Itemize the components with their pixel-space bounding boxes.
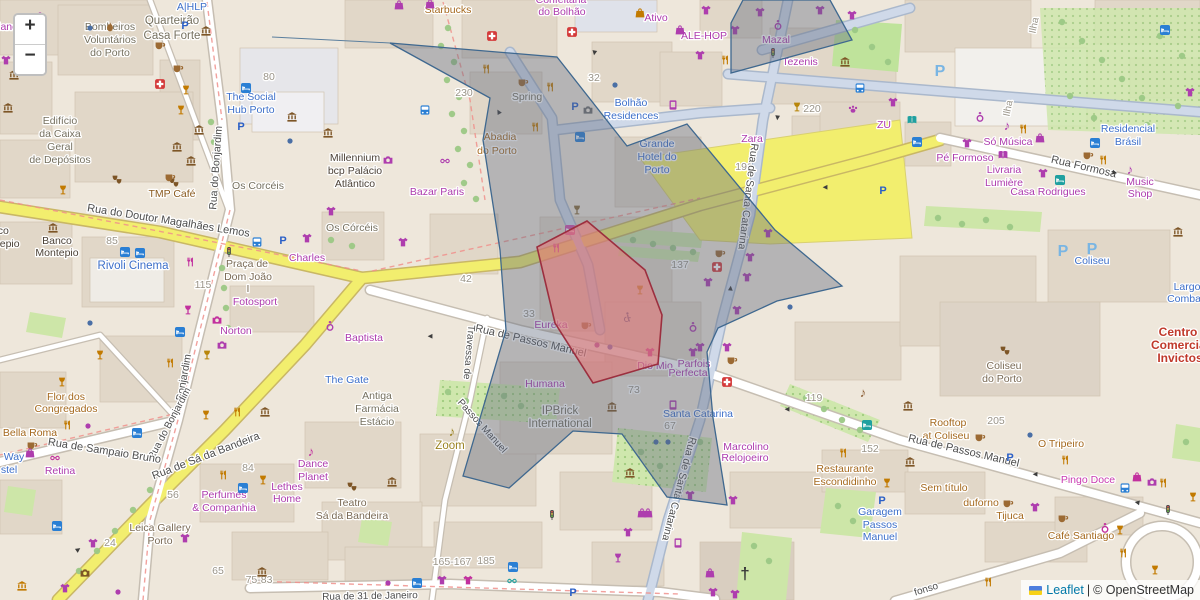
map-label: Bolhão: [615, 97, 648, 109]
dot-icon: [85, 423, 90, 428]
bus-icon: [1121, 483, 1130, 492]
map-label: 205: [987, 415, 1005, 427]
map-label: Pé Formoso: [936, 152, 993, 164]
parking-icon: P: [1058, 243, 1069, 260]
map-label: 115: [195, 279, 212, 291]
arw-icon: ►: [590, 48, 600, 57]
parking-icon: P: [279, 235, 286, 247]
map-label: Ativo: [644, 12, 668, 24]
attribution-bar: Leaflet|© OpenStreetMap: [1021, 580, 1200, 600]
map-label: Charles: [289, 252, 325, 264]
map-canvas[interactable]: BombeirosVoluntáriosdo PortoEdifícioda C…: [0, 0, 1200, 600]
bed-icon: [135, 248, 145, 258]
bed-icon: [175, 327, 185, 337]
map-label: ZU: [877, 119, 891, 131]
map-label: Lethes: [271, 481, 303, 493]
map-label: Millennium: [330, 152, 380, 164]
note-icon: ♪: [1127, 162, 1134, 177]
note-icon: ♪: [860, 385, 867, 400]
map-label: Porto: [147, 535, 172, 547]
map-label: Teatro: [337, 497, 366, 509]
map-label: Fotosport: [233, 296, 277, 308]
bed-icon: [1160, 25, 1170, 35]
dot-icon: [612, 82, 617, 87]
bus-icon: [856, 83, 865, 92]
map-label: da Caixa: [39, 128, 81, 140]
map-label: Pingo Doce: [1061, 474, 1115, 486]
map-label: Farmácia: [355, 403, 399, 415]
med-icon: [487, 31, 497, 41]
map-label: Os Corcéis: [232, 180, 284, 192]
osm-attribution-link[interactable]: © OpenStreetMap: [1093, 583, 1194, 597]
map-label: I: [247, 283, 250, 295]
map-label: Home: [273, 493, 301, 505]
bed-icon: [1090, 138, 1100, 148]
bus-icon: [421, 105, 430, 114]
bed-icon: [508, 562, 518, 572]
map-label: 80: [263, 71, 275, 83]
map-label: Casa Rodrigues: [1010, 186, 1085, 198]
note-icon: ♪: [308, 444, 315, 459]
map-label: Edifício: [43, 115, 78, 127]
parking-icon: P: [935, 63, 946, 80]
note-icon: ♪: [1004, 118, 1011, 133]
map-label: duforno: [963, 497, 999, 509]
map-label: Restaurante: [816, 463, 873, 475]
map-label: Sá da Bandeira: [316, 510, 389, 522]
bed-icon: [912, 137, 922, 147]
dot-icon: [385, 580, 390, 585]
bed-icon: [241, 83, 251, 93]
map-label: Estácio: [360, 416, 395, 428]
map-label: 56: [167, 489, 179, 501]
map-label: Escondidinho: [813, 476, 876, 488]
bed-icon: [238, 483, 248, 493]
map-label: Congregados: [34, 403, 97, 415]
map-label: Rooftop: [930, 417, 967, 429]
bed-icon: [120, 247, 130, 257]
dot-icon: [87, 320, 92, 325]
map-label: 65: [212, 565, 224, 577]
arw-icon: ►: [821, 183, 829, 192]
map-label: Flor dos: [47, 391, 85, 403]
map-label: Geral: [47, 141, 73, 153]
map-base: BombeirosVoluntáriosdo PortoEdifícioda C…: [0, 0, 1200, 600]
map-label: do Bolhão: [538, 6, 585, 18]
parking-icon: P: [1087, 241, 1098, 258]
map-label: Garagem: [858, 506, 902, 518]
zoom-in-button[interactable]: +: [15, 15, 45, 45]
parking-icon: P: [878, 495, 885, 507]
arw-icon: ►: [783, 405, 791, 414]
map-label: Shop: [1128, 188, 1153, 200]
parking-icon: P: [181, 20, 188, 32]
map-label: TMP Café: [148, 188, 195, 200]
map-label: Comercial: [1151, 338, 1200, 352]
map-label: A|HLP: [177, 1, 207, 13]
leaflet-link[interactable]: Leaflet: [1046, 583, 1084, 597]
zoom-out-button[interactable]: −: [15, 45, 45, 74]
map-label: Praça de: [226, 258, 268, 270]
dot-icon: [787, 304, 792, 309]
map-label: Passos: [863, 519, 897, 531]
arw-icon: ►: [1031, 470, 1039, 479]
map-label: 185: [477, 555, 495, 567]
med-icon: [567, 27, 577, 37]
map-label: Casa Forte: [144, 30, 201, 42]
parking-icon: P: [1006, 452, 1013, 464]
dot-icon: [1027, 432, 1032, 437]
note-icon: ♪: [449, 424, 456, 439]
map-label: Way: [4, 451, 25, 463]
map-label: 152: [861, 443, 879, 455]
map-label: Residencial: [1101, 123, 1155, 135]
map-label: Leica Gallery: [129, 522, 191, 534]
map-label: Zoom: [435, 440, 464, 452]
map-label: 165-167: [433, 556, 472, 568]
bed-icon: [412, 578, 422, 588]
map-label: Comba: [1167, 293, 1200, 305]
map-label: do Porto: [982, 373, 1022, 385]
map-label: Só Música: [983, 136, 1032, 148]
map-label: 220: [803, 103, 821, 115]
map-label: Relojoeiro: [721, 452, 768, 464]
map-label: Retina: [45, 465, 76, 477]
bed-icon: [1055, 175, 1065, 185]
bed-icon: [862, 420, 872, 430]
map-label: Atlântico: [335, 178, 375, 190]
map-label: Banco: [42, 235, 72, 247]
med-icon: [155, 79, 165, 89]
map-label: The Gate: [325, 374, 369, 386]
map-label: Brásil: [1115, 136, 1141, 148]
map-label: Voluntários: [84, 34, 136, 46]
map-label: 42: [460, 273, 472, 285]
map-label: Rivoli Cinema: [98, 260, 170, 272]
map-label: Bazar Paris: [410, 186, 464, 198]
parking-icon: P: [569, 587, 576, 599]
ukraine-flag-icon: [1029, 586, 1042, 595]
bus-icon: [253, 237, 262, 246]
bed-icon: [52, 521, 62, 531]
map-label: do Porto: [90, 47, 130, 59]
map-label: 85: [106, 235, 118, 247]
map-label: Montepio: [35, 247, 78, 259]
map-label: The Social: [226, 91, 276, 103]
map-label: Quarteirão: [145, 15, 199, 27]
parking-icon: P: [879, 185, 886, 197]
map-label: Dance: [298, 458, 329, 470]
map-label: ALE-HOP: [681, 30, 727, 42]
attribution-separator: |: [1087, 583, 1090, 597]
dot-icon: [115, 589, 120, 594]
map-label: Largo: [1174, 281, 1200, 293]
map-label: Norton: [220, 325, 252, 337]
parking-icon: P: [237, 121, 244, 133]
map-label: Bella Roma: [3, 427, 57, 439]
bed-icon: [132, 428, 142, 438]
map-label: Music: [1126, 176, 1153, 188]
map-label: Dom João: [224, 271, 272, 283]
map-label: 84: [242, 462, 254, 474]
map-label: Residences: [604, 110, 659, 122]
map-label: Coliseu: [986, 360, 1021, 372]
med-icon: [722, 377, 732, 387]
map-label: Centro: [1159, 325, 1198, 339]
map-label: de Depósitos: [29, 154, 90, 166]
map-label: Baptista: [345, 332, 383, 344]
map-label: Banco: [0, 225, 9, 237]
map-label: Montepio: [0, 238, 20, 250]
map-label: stel: [1, 464, 17, 476]
map-label: Rua de 31 de Janeiro: [322, 590, 418, 600]
map-label: & Companhia: [192, 502, 256, 514]
map-label: O Tripeiro: [1038, 438, 1084, 450]
dot-icon: [287, 138, 292, 143]
map-label: Hub Porto: [227, 104, 274, 116]
dot-icon: [87, 25, 92, 30]
map-label: 32: [588, 72, 600, 84]
map-label: 230: [455, 87, 473, 99]
map-label: bcp Palácio: [328, 165, 382, 177]
map-label: Tijuca: [996, 510, 1024, 522]
cross-icon: †: [740, 564, 749, 583]
arw-icon: ►: [773, 114, 783, 123]
arw-icon: ►: [1132, 498, 1141, 508]
map-label: Livraria: [987, 164, 1022, 176]
map-label: 119: [806, 392, 823, 404]
map-label: Manuel: [863, 531, 897, 543]
map-label: Os Córcéis: [326, 222, 378, 234]
arw-icon: ►: [426, 332, 434, 341]
map-label: Sem título: [920, 482, 967, 494]
map-label: Invictos: [1157, 351, 1200, 365]
map-label: 24: [104, 537, 116, 549]
map-label: Antiga: [362, 390, 392, 402]
zoom-control: + −: [13, 13, 47, 76]
